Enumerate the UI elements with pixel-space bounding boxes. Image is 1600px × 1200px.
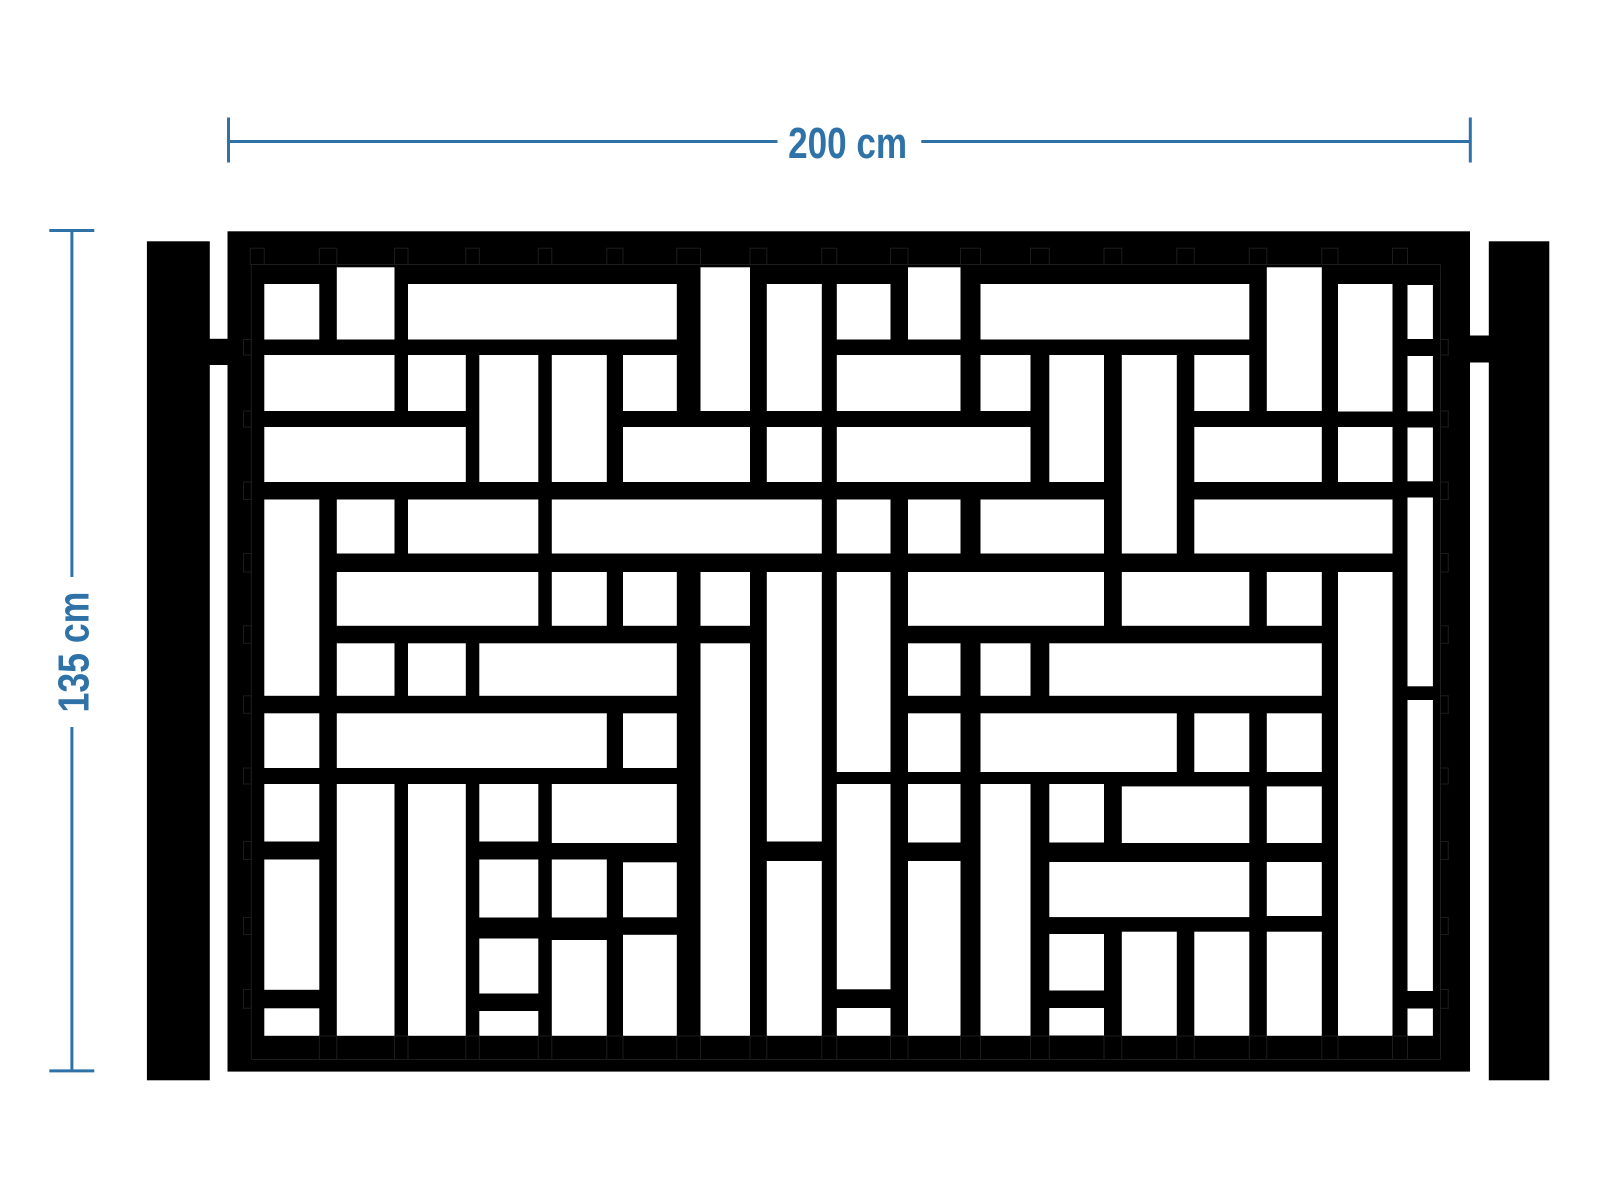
svg-text:200 cm: 200 cm [788,119,907,168]
svg-text:135 cm: 135 cm [50,592,99,713]
